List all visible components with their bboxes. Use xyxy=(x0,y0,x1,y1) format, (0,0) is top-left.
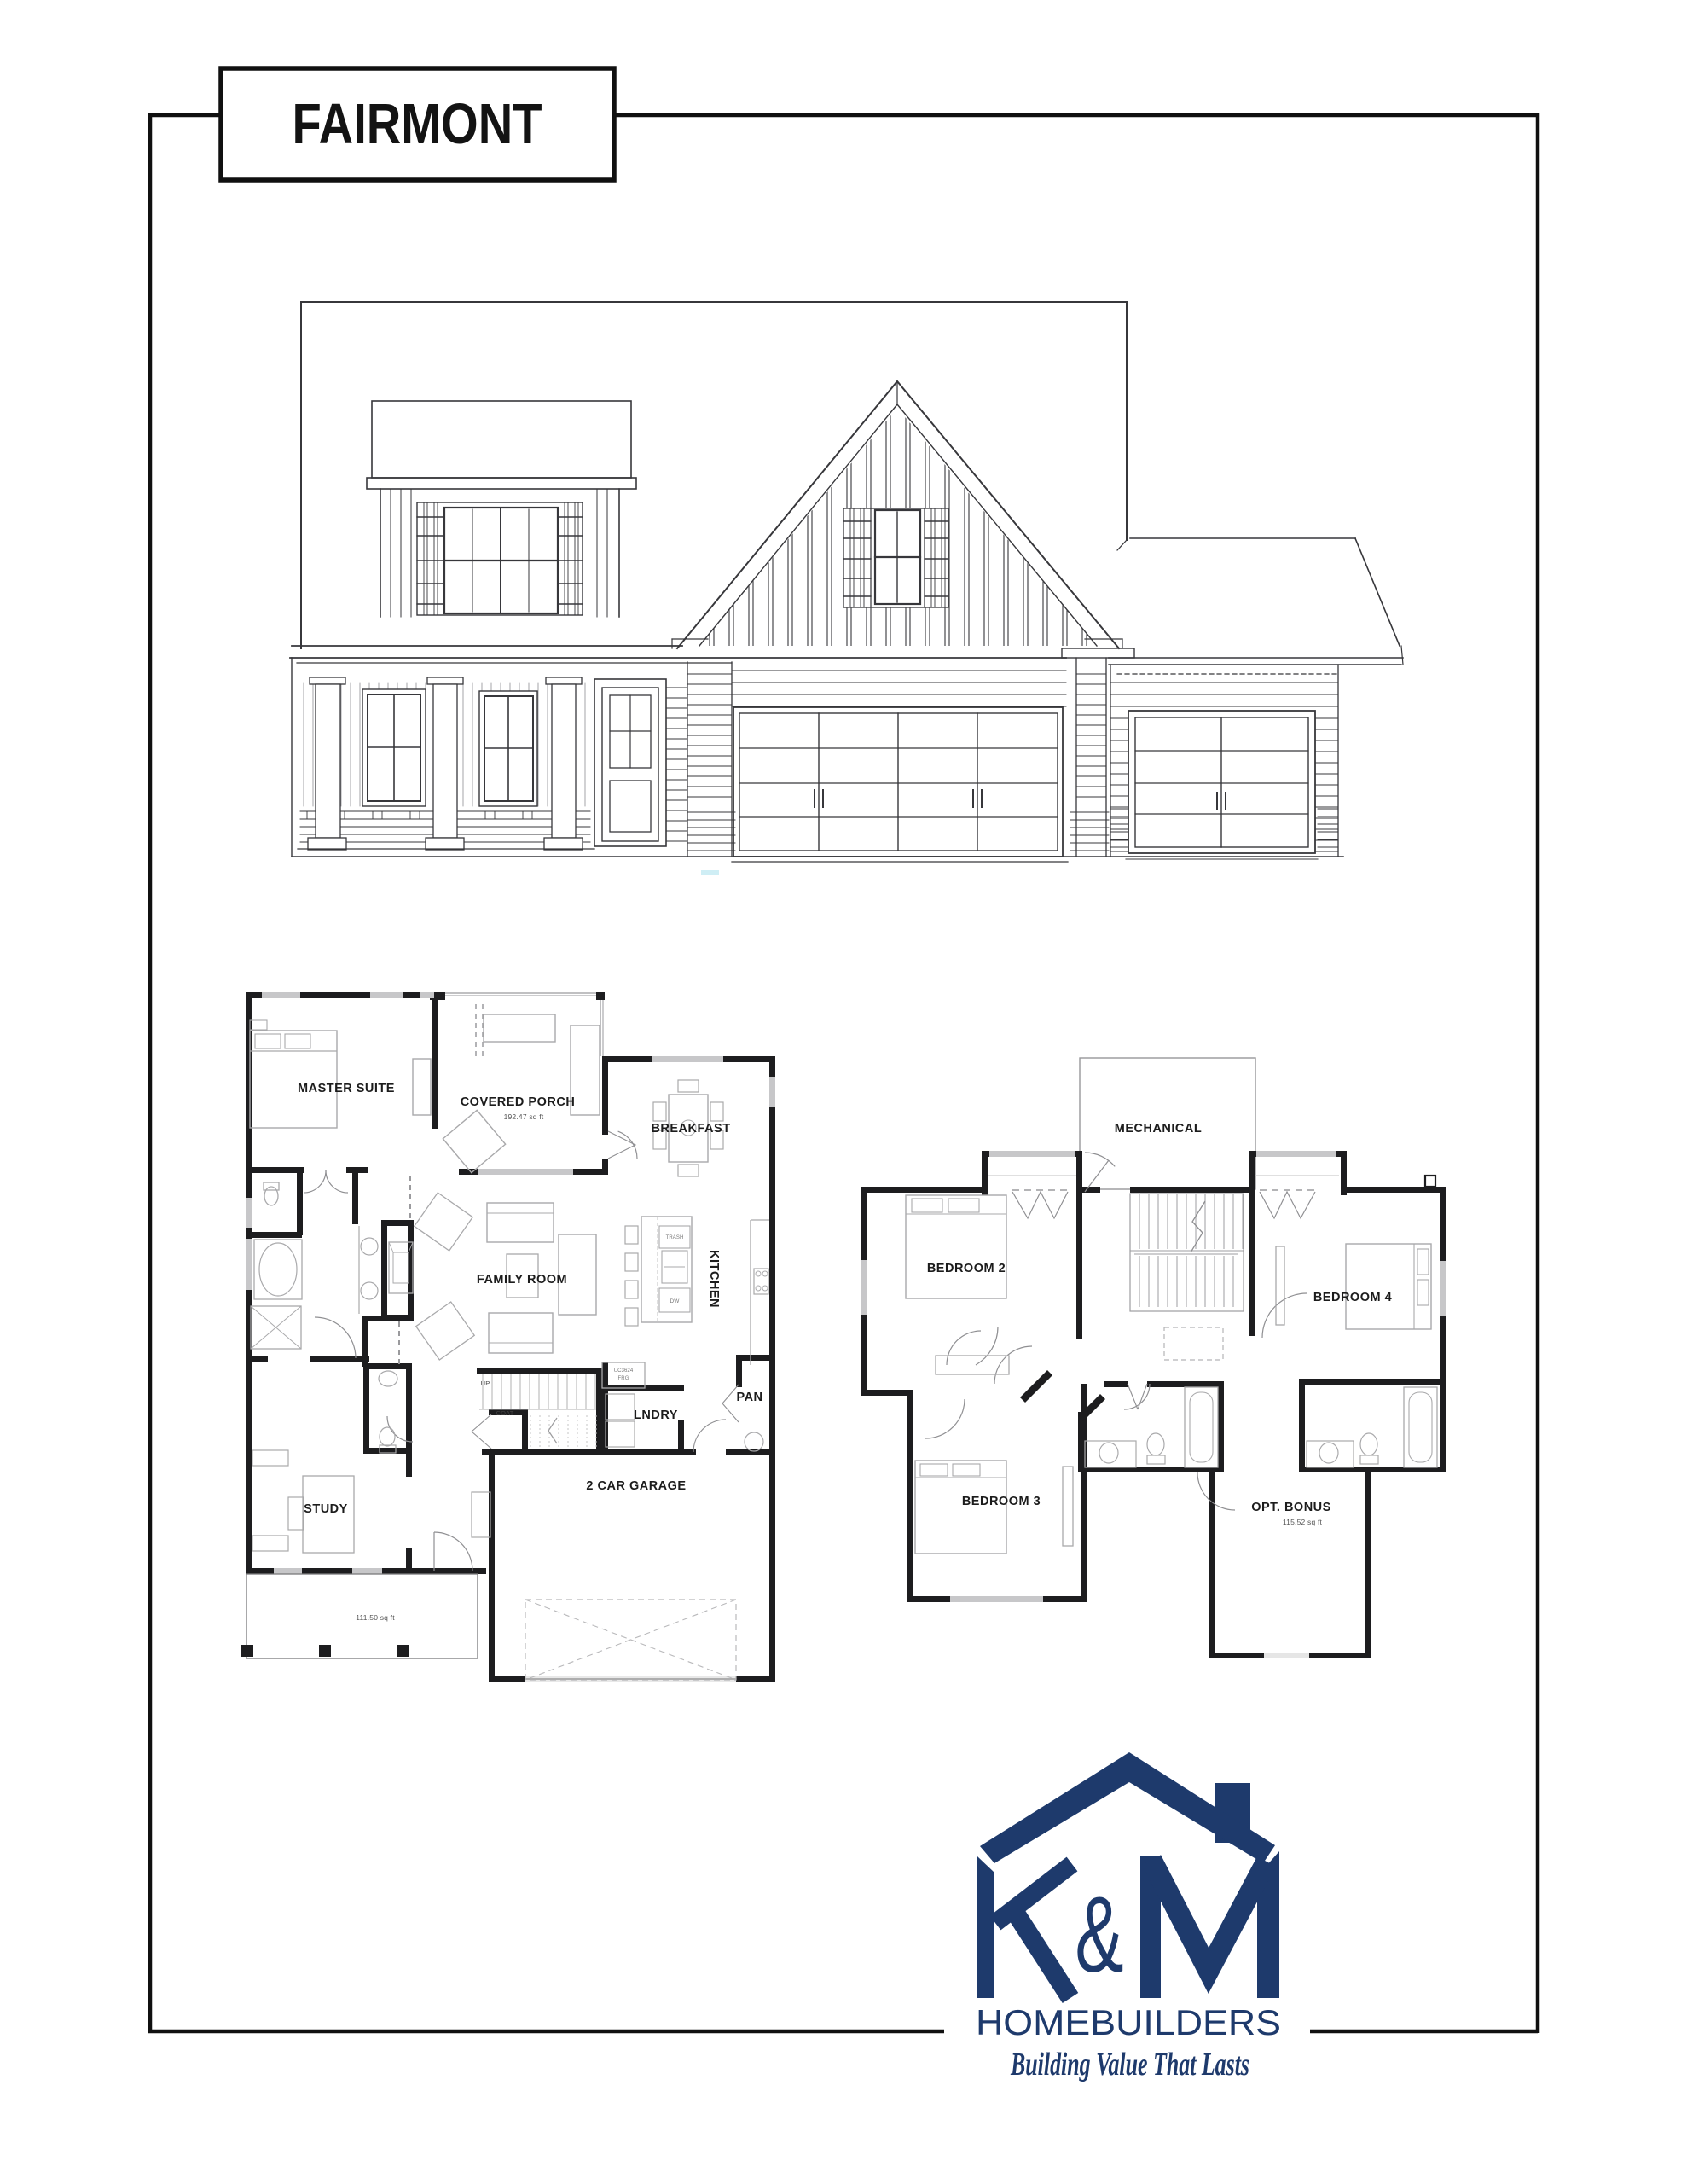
svg-text:LNDRY: LNDRY xyxy=(634,1409,678,1422)
svg-text:Building Value That Lasts: Building Value That Lasts xyxy=(1010,2047,1249,2082)
svg-text:&: & xyxy=(1075,1873,1123,1995)
svg-text:DW: DW xyxy=(670,1298,680,1304)
svg-text:MASTER SUITE: MASTER SUITE xyxy=(298,1082,395,1095)
svg-text:STUDY: STUDY xyxy=(304,1502,348,1516)
svg-text:BEDROOM 2: BEDROOM 2 xyxy=(927,1262,1006,1275)
svg-text:BREAKFAST: BREAKFAST xyxy=(651,1122,730,1136)
svg-text:2 CAR GARAGE: 2 CAR GARAGE xyxy=(586,1479,686,1493)
svg-text:PAN: PAN xyxy=(736,1391,762,1404)
svg-text:111.50 sq ft: 111.50 sq ft xyxy=(356,1613,395,1622)
svg-text:192.47 sq ft: 192.47 sq ft xyxy=(504,1112,544,1121)
svg-text:UP: UP xyxy=(481,1380,490,1387)
svg-text:FAIRMONT: FAIRMONT xyxy=(293,92,542,156)
svg-text:FRG: FRG xyxy=(618,1376,629,1381)
svg-text:FAMILY ROOM: FAMILY ROOM xyxy=(477,1273,567,1287)
svg-text:UC3624: UC3624 xyxy=(614,1368,634,1374)
svg-text:BEDROOM 3: BEDROOM 3 xyxy=(962,1495,1041,1508)
svg-text:115.52 sq ft: 115.52 sq ft xyxy=(1283,1518,1323,1526)
svg-text:BEDROOM 4: BEDROOM 4 xyxy=(1313,1291,1392,1304)
svg-text:MECHANICAL: MECHANICAL xyxy=(1115,1122,1202,1136)
svg-text:TRASH: TRASH xyxy=(666,1235,684,1240)
svg-text:COAT: COAT xyxy=(496,1409,513,1417)
svg-text:KITCHEN: KITCHEN xyxy=(707,1250,721,1308)
svg-text:OPT. BONUS: OPT. BONUS xyxy=(1251,1501,1331,1514)
svg-text:HOMEBUILDERS: HOMEBUILDERS xyxy=(976,2002,1281,2042)
svg-text:COVERED PORCH: COVERED PORCH xyxy=(461,1095,576,1109)
